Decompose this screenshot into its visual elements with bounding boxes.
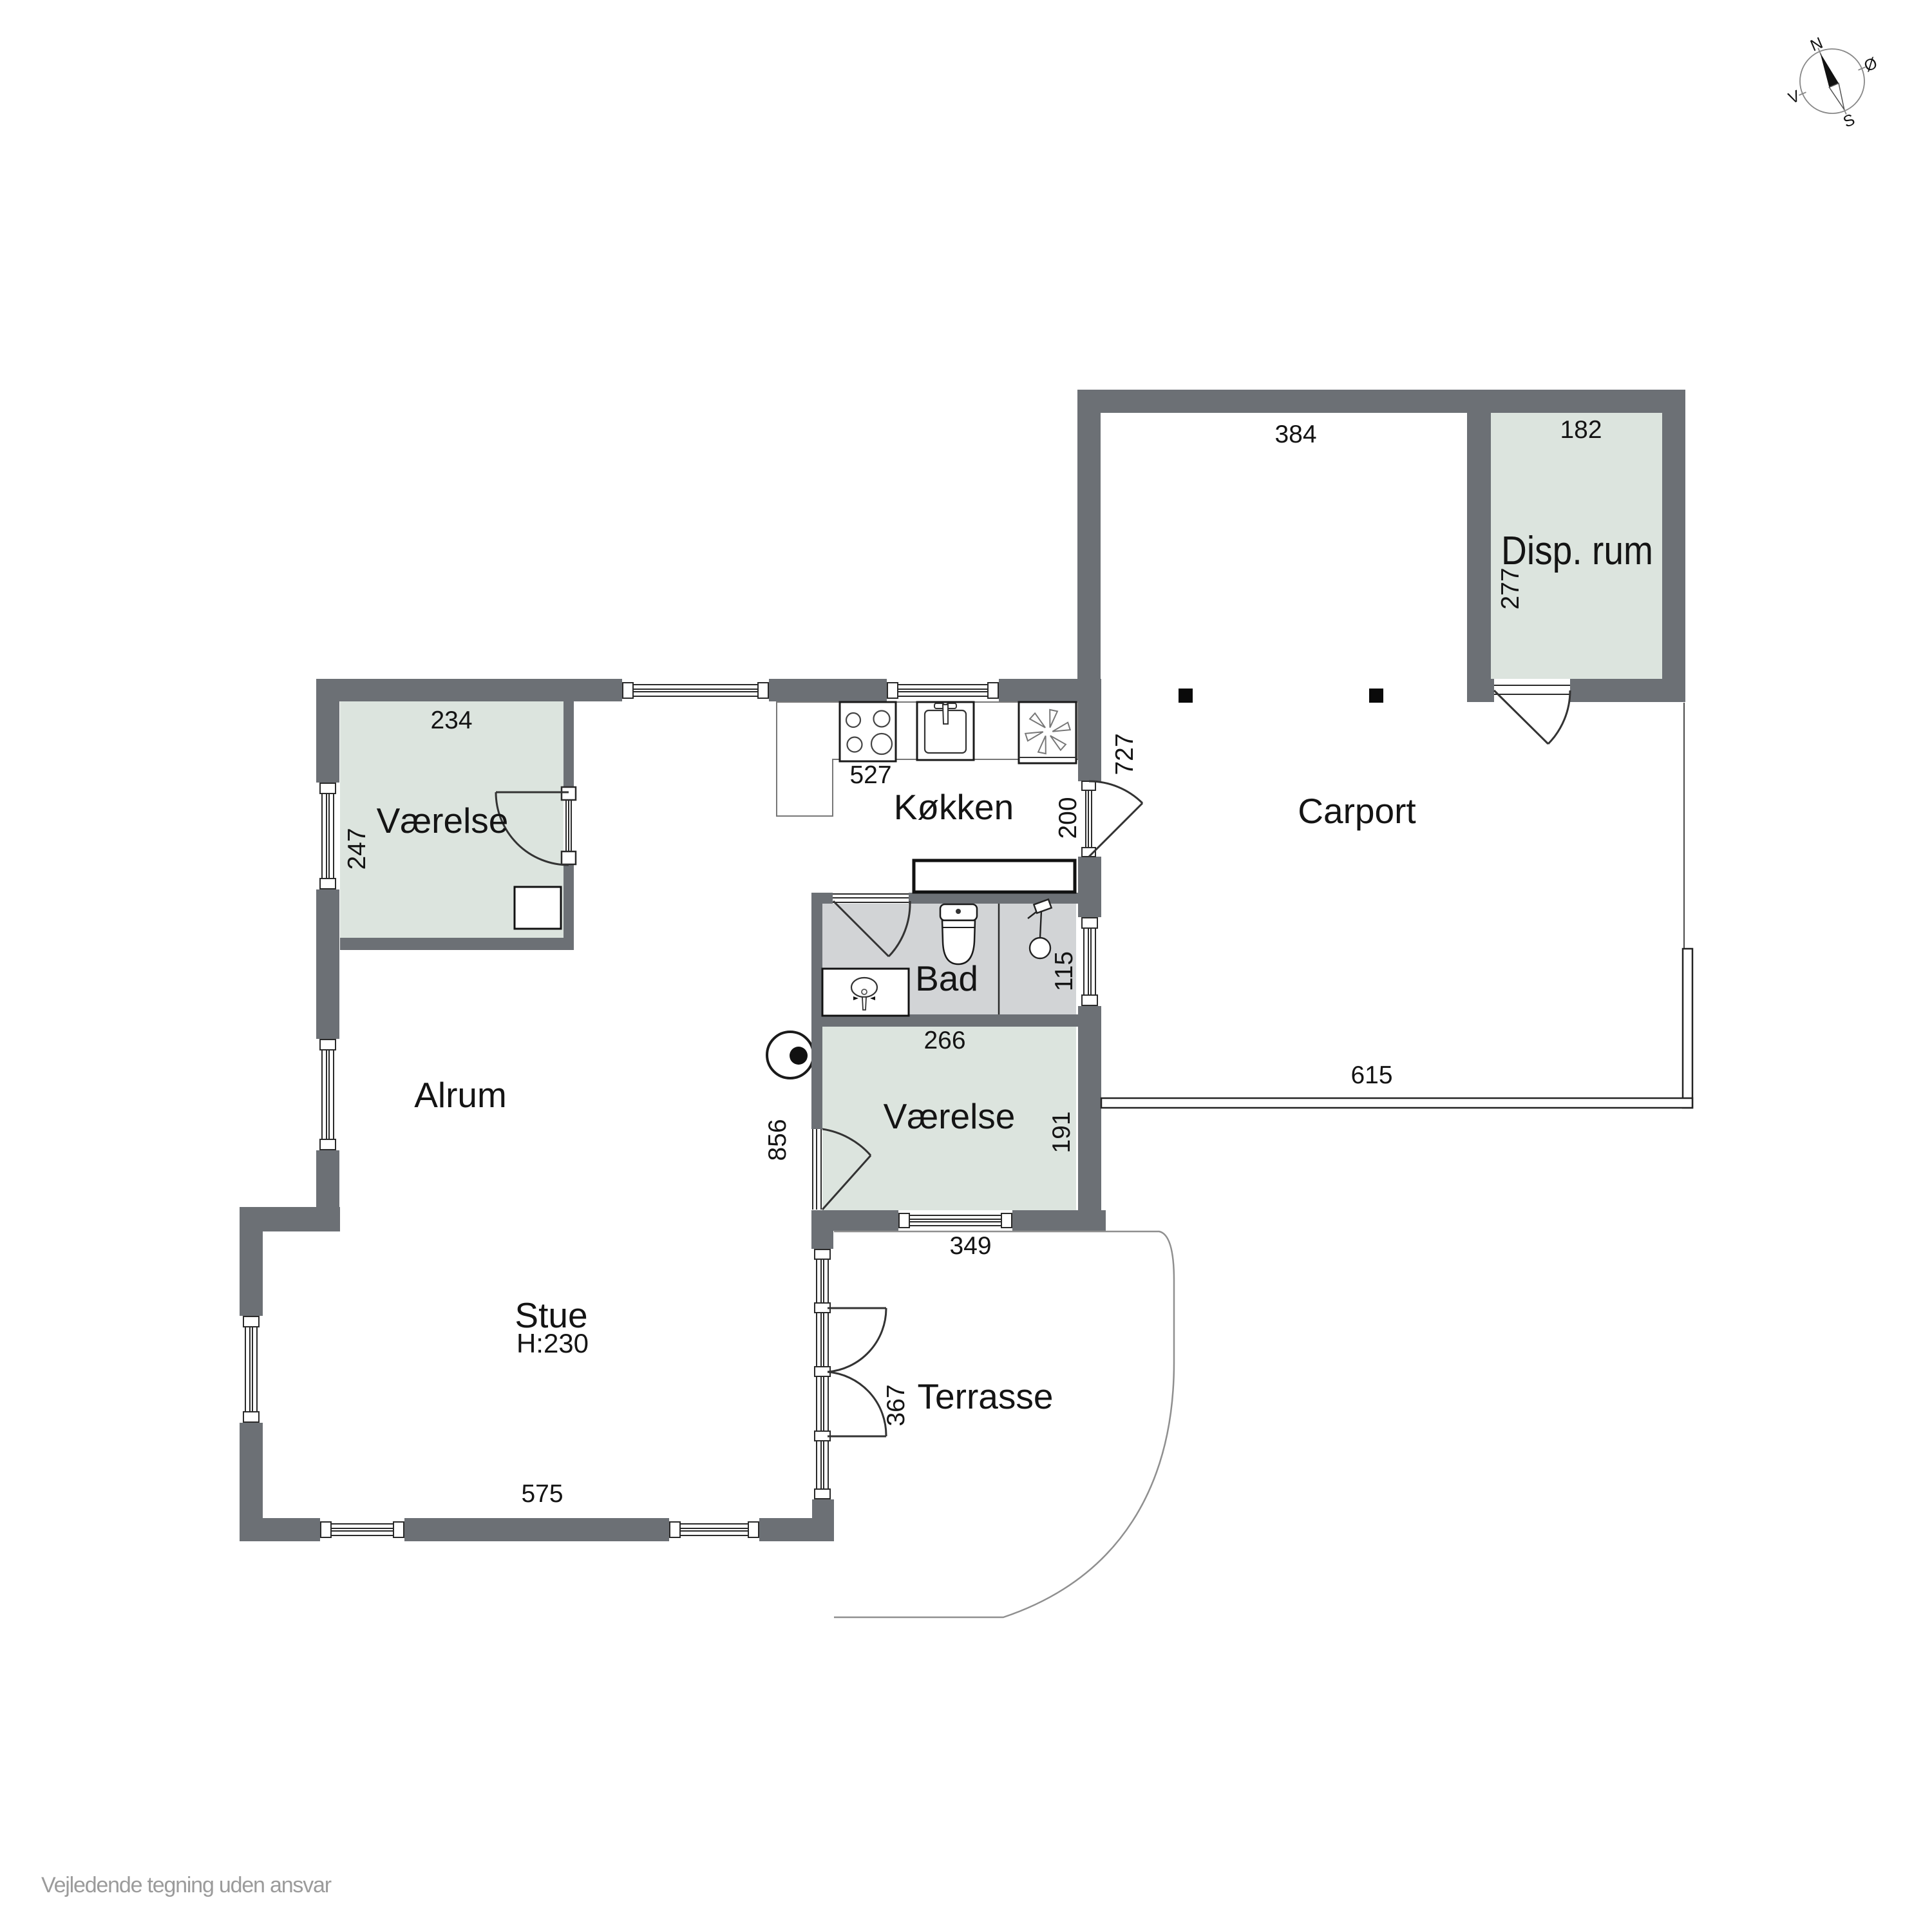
svg-text:384: 384 — [1274, 421, 1316, 448]
svg-text:115: 115 — [1050, 951, 1078, 991]
svg-text:615: 615 — [1350, 1061, 1392, 1089]
svg-text:S: S — [1841, 111, 1857, 131]
svg-text:575: 575 — [521, 1480, 563, 1508]
svg-text:367: 367 — [882, 1384, 910, 1426]
svg-text:Bad: Bad — [915, 958, 978, 998]
svg-text:856: 856 — [764, 1119, 791, 1161]
svg-text:Alrum: Alrum — [414, 1075, 507, 1115]
svg-text:H:230: H:230 — [516, 1328, 589, 1358]
svg-text:Værelse: Værelse — [377, 801, 509, 841]
svg-text:Vejledende tegning uden ansvar: Vejledende tegning uden ansvar — [41, 1873, 332, 1897]
svg-text:Disp. rum: Disp. rum — [1501, 529, 1653, 573]
svg-text:182: 182 — [1560, 416, 1602, 444]
svg-text:191: 191 — [1048, 1111, 1075, 1153]
svg-text:349: 349 — [949, 1232, 991, 1260]
svg-text:Terrasse: Terrasse — [918, 1376, 1054, 1416]
svg-text:527: 527 — [849, 761, 891, 789]
svg-text:277: 277 — [1497, 567, 1524, 609]
svg-text:N: N — [1808, 34, 1826, 55]
svg-text:Ø: Ø — [1861, 54, 1880, 75]
svg-text:Carport: Carport — [1298, 791, 1416, 831]
svg-text:V: V — [1786, 87, 1803, 108]
svg-text:247: 247 — [343, 828, 371, 869]
svg-text:727: 727 — [1111, 733, 1139, 775]
svg-text:200: 200 — [1054, 797, 1082, 839]
svg-text:234: 234 — [430, 707, 472, 734]
svg-text:Værelse: Værelse — [884, 1096, 1016, 1136]
svg-text:266: 266 — [923, 1027, 965, 1054]
svg-text:Køkken: Køkken — [894, 787, 1014, 827]
